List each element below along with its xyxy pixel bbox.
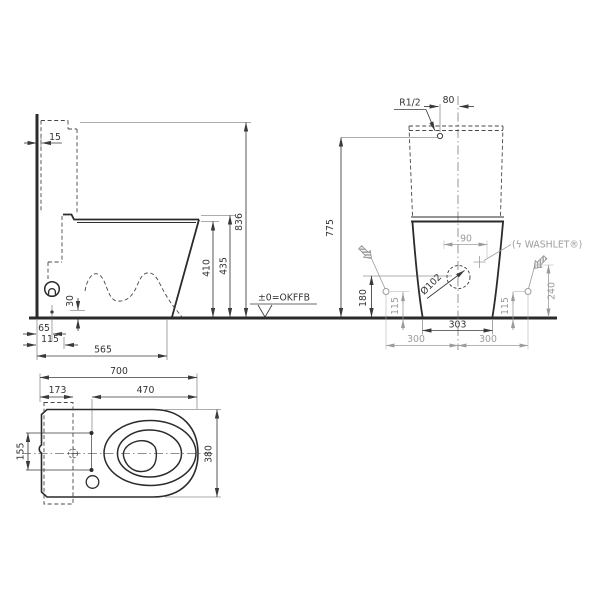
dim-label-300l: 300 [407,334,425,345]
dim-label-115r: 115 [500,297,511,315]
floor-level-label: ±0=OKFFB [258,293,310,304]
dim-label-115l: 115 [390,297,401,315]
dim-label-380: 380 [204,445,215,463]
hinge-hole-bottom [90,468,94,472]
dim-label-470: 470 [137,385,155,396]
left-connection-point [383,289,389,295]
dim-label-775: 775 [325,219,336,237]
toilet-dimension-drawing: 15 836 435 410 30 65 115 565 ±0=OKFFB [0,0,600,600]
dim-label-15: 15 [49,132,61,143]
dim-label-300r: 300 [479,334,497,345]
dim-label-700: 700 [110,366,128,377]
supply-point [437,133,442,138]
dim-label-180: 180 [358,289,369,307]
dim-label-r12: R1/2 [399,98,420,109]
dim-label-90: 90 [460,234,472,245]
dim-label-240: 240 [547,282,558,300]
dim-label-30: 30 [65,295,76,307]
dim-label-836: 836 [234,213,245,231]
dim-label-115: 115 [41,334,59,345]
technical-drawing-canvas: 15 836 435 410 30 65 115 565 ±0=OKFFB [0,0,600,600]
right-connection-point [525,289,531,295]
hinge-hole-top [90,431,94,435]
dim-label-410: 410 [202,259,213,277]
dim-label-80: 80 [443,95,455,106]
dim-label-155: 155 [16,443,27,461]
dim-label-173: 173 [49,385,67,396]
dim-label-435: 435 [219,257,230,275]
washlet-label: (ϟ WASHLET®) [512,240,582,251]
dim-label-65: 65 [38,323,50,334]
dim-label-303: 303 [449,320,467,331]
dim-label-565: 565 [94,345,112,356]
